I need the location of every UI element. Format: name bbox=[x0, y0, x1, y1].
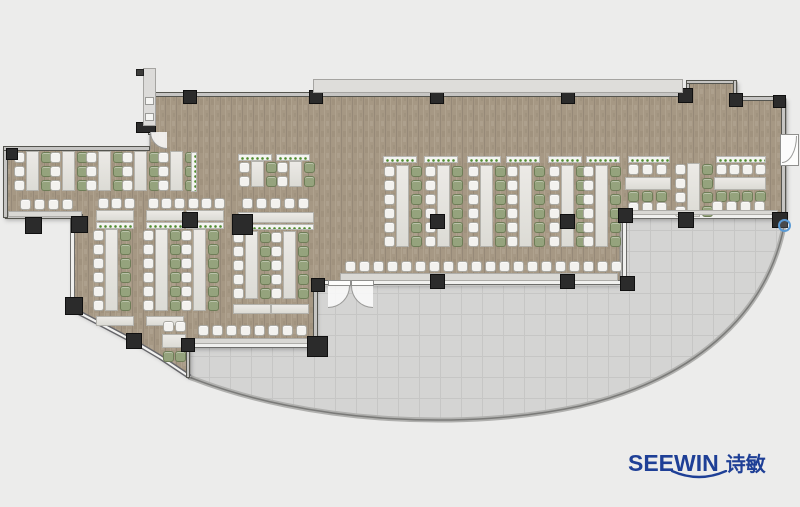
green-chair bbox=[120, 272, 131, 283]
green-chair bbox=[260, 232, 271, 243]
white-chair bbox=[675, 164, 686, 175]
white-chair bbox=[181, 258, 192, 269]
plan-marker bbox=[778, 219, 791, 232]
white-chair bbox=[443, 261, 454, 272]
green-chair bbox=[266, 162, 277, 173]
white-chair bbox=[254, 325, 265, 336]
planter-box bbox=[238, 154, 272, 161]
white-chair bbox=[296, 325, 307, 336]
white-chair bbox=[597, 261, 608, 272]
green-chair bbox=[495, 166, 506, 177]
green-chair bbox=[120, 300, 131, 311]
white-chair bbox=[583, 222, 594, 233]
dining-table bbox=[26, 151, 39, 191]
white-chair bbox=[415, 261, 426, 272]
dining-table bbox=[396, 165, 409, 247]
white-chair bbox=[163, 321, 174, 332]
white-chair bbox=[239, 176, 250, 187]
structural-column bbox=[25, 217, 42, 234]
white-chair bbox=[158, 166, 169, 177]
dining-table bbox=[155, 229, 168, 311]
white-chair bbox=[284, 198, 295, 209]
white-chair bbox=[507, 236, 518, 247]
green-chair bbox=[628, 191, 639, 202]
white-chair bbox=[429, 261, 440, 272]
white-chair bbox=[425, 236, 436, 247]
wall bbox=[186, 348, 190, 378]
white-chair bbox=[239, 162, 250, 173]
white-chair bbox=[387, 261, 398, 272]
green-chair bbox=[642, 191, 653, 202]
white-chair bbox=[298, 198, 309, 209]
green-chair bbox=[298, 260, 309, 271]
exterior-ledge bbox=[313, 79, 683, 93]
fixture bbox=[145, 113, 154, 121]
white-chair bbox=[20, 199, 31, 210]
white-chair bbox=[181, 300, 192, 311]
white-chair bbox=[233, 260, 244, 271]
structural-column bbox=[183, 90, 197, 104]
white-chair bbox=[198, 325, 209, 336]
planter-box bbox=[96, 222, 134, 229]
white-chair bbox=[569, 261, 580, 272]
white-chair bbox=[181, 286, 192, 297]
white-chair bbox=[98, 198, 109, 209]
white-chair bbox=[549, 208, 560, 219]
white-chair bbox=[384, 236, 395, 247]
white-chair bbox=[277, 176, 288, 187]
white-chair bbox=[384, 194, 395, 205]
green-chair bbox=[411, 236, 422, 247]
white-chair bbox=[541, 261, 552, 272]
white-chair bbox=[86, 180, 97, 191]
white-chair bbox=[122, 152, 133, 163]
white-chair bbox=[233, 288, 244, 299]
white-chair bbox=[181, 272, 192, 283]
white-chair bbox=[583, 166, 594, 177]
green-chair bbox=[208, 258, 219, 269]
floor-plan-canvas: SEEWIN 诗敏 bbox=[0, 0, 800, 507]
white-chair bbox=[122, 180, 133, 191]
structural-column bbox=[307, 336, 328, 357]
planter-box bbox=[276, 154, 310, 161]
green-chair bbox=[534, 222, 545, 233]
white-chair bbox=[384, 208, 395, 219]
green-chair bbox=[304, 162, 315, 173]
green-chair bbox=[298, 274, 309, 285]
structural-column bbox=[232, 214, 253, 235]
glass-wall bbox=[622, 214, 627, 284]
wall bbox=[781, 163, 786, 219]
white-chair bbox=[425, 166, 436, 177]
white-chair bbox=[468, 236, 479, 247]
white-chair bbox=[345, 261, 356, 272]
structural-column bbox=[618, 208, 633, 223]
structural-column bbox=[181, 338, 195, 352]
white-chair bbox=[583, 236, 594, 247]
white-chair bbox=[555, 261, 566, 272]
green-chair bbox=[452, 166, 463, 177]
dining-table bbox=[561, 165, 574, 247]
white-chair bbox=[549, 166, 560, 177]
structural-column bbox=[182, 212, 198, 228]
green-chair bbox=[534, 236, 545, 247]
structural-column bbox=[678, 212, 694, 228]
white-chair bbox=[93, 230, 104, 241]
counter bbox=[340, 273, 618, 281]
white-chair bbox=[716, 164, 727, 175]
white-chair bbox=[583, 194, 594, 205]
structural-column bbox=[560, 214, 575, 229]
white-chair bbox=[468, 180, 479, 191]
green-chair bbox=[298, 288, 309, 299]
planter-box bbox=[506, 156, 540, 163]
planter-box bbox=[383, 156, 417, 163]
white-chair bbox=[271, 274, 282, 285]
green-chair bbox=[170, 286, 181, 297]
dining-table bbox=[625, 177, 671, 190]
green-chair bbox=[656, 191, 667, 202]
planter-box bbox=[424, 156, 458, 163]
structural-column bbox=[620, 276, 635, 291]
green-chair bbox=[702, 192, 713, 203]
white-chair bbox=[143, 286, 154, 297]
white-chair bbox=[181, 244, 192, 255]
white-chair bbox=[233, 246, 244, 257]
planter-box bbox=[191, 152, 197, 192]
white-chair bbox=[111, 198, 122, 209]
structural-column bbox=[560, 274, 575, 289]
dining-table bbox=[519, 165, 532, 247]
white-chair bbox=[499, 261, 510, 272]
counter bbox=[626, 210, 778, 215]
white-chair bbox=[485, 261, 496, 272]
white-chair bbox=[143, 300, 154, 311]
white-chair bbox=[242, 198, 253, 209]
dining-table bbox=[480, 165, 493, 247]
white-chair bbox=[161, 198, 172, 209]
white-chair bbox=[642, 164, 653, 175]
white-chair bbox=[270, 198, 281, 209]
white-chair bbox=[675, 192, 686, 203]
white-chair bbox=[174, 198, 185, 209]
white-chair bbox=[212, 325, 223, 336]
white-chair bbox=[425, 180, 436, 191]
green-chair bbox=[298, 232, 309, 243]
green-chair bbox=[610, 222, 621, 233]
dining-table bbox=[96, 210, 134, 221]
green-chair bbox=[411, 208, 422, 219]
dining-table bbox=[245, 231, 258, 299]
white-chair bbox=[271, 232, 282, 243]
green-chair bbox=[534, 194, 545, 205]
green-chair bbox=[452, 180, 463, 191]
white-chair bbox=[507, 166, 518, 177]
structural-column bbox=[6, 148, 18, 160]
green-chair bbox=[411, 222, 422, 233]
white-chair bbox=[188, 198, 199, 209]
green-chair bbox=[702, 178, 713, 189]
green-chair bbox=[495, 208, 506, 219]
green-chair bbox=[170, 230, 181, 241]
dining-table bbox=[233, 304, 271, 314]
green-chair bbox=[304, 176, 315, 187]
white-chair bbox=[471, 261, 482, 272]
white-chair bbox=[277, 162, 288, 173]
green-chair bbox=[610, 236, 621, 247]
green-chair bbox=[534, 208, 545, 219]
white-chair bbox=[507, 208, 518, 219]
dining-table bbox=[170, 151, 183, 191]
green-chair bbox=[208, 300, 219, 311]
white-chair bbox=[93, 272, 104, 283]
structural-column bbox=[311, 278, 325, 292]
white-chair bbox=[549, 180, 560, 191]
dining-table bbox=[687, 163, 700, 217]
white-chair bbox=[50, 152, 61, 163]
white-chair bbox=[201, 198, 212, 209]
dining-table bbox=[437, 165, 450, 247]
white-chair bbox=[549, 194, 560, 205]
white-chair bbox=[143, 230, 154, 241]
white-chair bbox=[755, 164, 766, 175]
white-chair bbox=[628, 164, 639, 175]
green-chair bbox=[120, 258, 131, 269]
white-chair bbox=[271, 246, 282, 257]
green-chair bbox=[208, 230, 219, 241]
planter-box bbox=[586, 156, 620, 163]
structural-column bbox=[430, 214, 445, 229]
white-chair bbox=[468, 222, 479, 233]
white-chair bbox=[468, 208, 479, 219]
green-chair bbox=[411, 180, 422, 191]
dining-table bbox=[98, 151, 111, 191]
white-chair bbox=[583, 208, 594, 219]
green-chair bbox=[120, 230, 131, 241]
white-chair bbox=[271, 260, 282, 271]
white-chair bbox=[507, 180, 518, 191]
green-chair bbox=[175, 351, 186, 362]
white-chair bbox=[226, 325, 237, 336]
dining-table bbox=[62, 151, 75, 191]
green-chair bbox=[495, 194, 506, 205]
white-chair bbox=[86, 166, 97, 177]
green-chair bbox=[170, 272, 181, 283]
white-chair bbox=[175, 321, 186, 332]
dining-table bbox=[714, 177, 766, 190]
dining-table bbox=[193, 229, 206, 311]
structural-column bbox=[126, 333, 142, 349]
white-chair bbox=[93, 244, 104, 255]
brand-chinese-name: 诗敏 bbox=[726, 448, 766, 477]
planter-box bbox=[628, 156, 670, 163]
dining-table bbox=[134, 151, 147, 191]
white-chair bbox=[14, 166, 25, 177]
dining-table bbox=[289, 161, 302, 187]
green-chair bbox=[411, 166, 422, 177]
white-chair bbox=[282, 325, 293, 336]
green-chair bbox=[610, 194, 621, 205]
white-chair bbox=[122, 166, 133, 177]
seewin-logo: SEEWIN 诗敏 bbox=[628, 448, 793, 482]
green-chair bbox=[170, 244, 181, 255]
planter-box bbox=[716, 156, 766, 163]
wall bbox=[686, 80, 737, 84]
white-chair bbox=[34, 199, 45, 210]
green-chair bbox=[260, 260, 271, 271]
structural-column bbox=[71, 216, 88, 233]
white-chair bbox=[93, 258, 104, 269]
green-chair bbox=[298, 246, 309, 257]
white-chair bbox=[256, 198, 267, 209]
white-chair bbox=[14, 180, 25, 191]
structural-column bbox=[729, 93, 743, 107]
green-chair bbox=[452, 208, 463, 219]
white-chair bbox=[148, 198, 159, 209]
white-chair bbox=[384, 180, 395, 191]
green-chair bbox=[208, 244, 219, 255]
green-chair bbox=[702, 164, 713, 175]
white-chair bbox=[425, 194, 436, 205]
dining-table bbox=[595, 165, 608, 247]
white-chair bbox=[50, 166, 61, 177]
white-chair bbox=[373, 261, 384, 272]
green-chair bbox=[452, 194, 463, 205]
white-chair bbox=[611, 261, 622, 272]
green-chair bbox=[120, 244, 131, 255]
green-chair bbox=[260, 288, 271, 299]
white-chair bbox=[62, 199, 73, 210]
green-chair bbox=[534, 180, 545, 191]
dining-table bbox=[105, 229, 118, 311]
brand-swoosh bbox=[670, 470, 728, 480]
white-chair bbox=[401, 261, 412, 272]
white-chair bbox=[742, 164, 753, 175]
green-chair bbox=[534, 166, 545, 177]
white-chair bbox=[271, 288, 282, 299]
white-chair bbox=[468, 194, 479, 205]
white-chair bbox=[359, 261, 370, 272]
structural-column bbox=[773, 95, 786, 108]
white-chair bbox=[158, 152, 169, 163]
white-chair bbox=[729, 164, 740, 175]
white-chair bbox=[527, 261, 538, 272]
green-chair bbox=[452, 236, 463, 247]
white-chair bbox=[549, 236, 560, 247]
white-chair bbox=[513, 261, 524, 272]
green-chair bbox=[260, 274, 271, 285]
white-chair bbox=[268, 325, 279, 336]
white-chair bbox=[675, 178, 686, 189]
white-chair bbox=[158, 180, 169, 191]
green-chair bbox=[170, 258, 181, 269]
counter bbox=[193, 338, 311, 344]
green-chair bbox=[495, 236, 506, 247]
green-chair bbox=[208, 272, 219, 283]
white-chair bbox=[583, 261, 594, 272]
green-chair bbox=[610, 180, 621, 191]
fixture bbox=[145, 97, 154, 105]
white-chair bbox=[86, 152, 97, 163]
green-chair bbox=[163, 351, 174, 362]
white-chair bbox=[240, 325, 251, 336]
fixture bbox=[136, 69, 144, 76]
green-chair bbox=[266, 176, 277, 187]
white-chair bbox=[457, 261, 468, 272]
dining-table bbox=[146, 210, 184, 221]
green-chair bbox=[260, 246, 271, 257]
green-chair bbox=[452, 222, 463, 233]
dining-table bbox=[96, 316, 134, 326]
planter-box bbox=[548, 156, 582, 163]
structural-column bbox=[430, 274, 445, 289]
green-chair bbox=[120, 286, 131, 297]
white-chair bbox=[656, 164, 667, 175]
green-chair bbox=[208, 286, 219, 297]
green-chair bbox=[170, 300, 181, 311]
white-chair bbox=[181, 230, 192, 241]
white-chair bbox=[384, 166, 395, 177]
planter-box bbox=[146, 222, 184, 229]
white-chair bbox=[93, 286, 104, 297]
white-chair bbox=[124, 198, 135, 209]
planter-box bbox=[467, 156, 501, 163]
dining-table bbox=[251, 161, 264, 187]
white-chair bbox=[507, 222, 518, 233]
green-chair bbox=[495, 180, 506, 191]
white-chair bbox=[48, 199, 59, 210]
white-chair bbox=[507, 194, 518, 205]
white-chair bbox=[143, 244, 154, 255]
white-chair bbox=[50, 180, 61, 191]
white-chair bbox=[93, 300, 104, 311]
structural-column bbox=[65, 297, 83, 315]
white-chair bbox=[214, 198, 225, 209]
white-chair bbox=[143, 258, 154, 269]
green-chair bbox=[495, 222, 506, 233]
white-chair bbox=[583, 180, 594, 191]
green-chair bbox=[411, 194, 422, 205]
white-chair bbox=[143, 272, 154, 283]
white-chair bbox=[468, 166, 479, 177]
white-chair bbox=[233, 274, 244, 285]
dining-table bbox=[271, 304, 309, 314]
green-chair bbox=[610, 166, 621, 177]
white-chair bbox=[549, 222, 560, 233]
dining-table bbox=[283, 231, 296, 299]
white-chair bbox=[384, 222, 395, 233]
